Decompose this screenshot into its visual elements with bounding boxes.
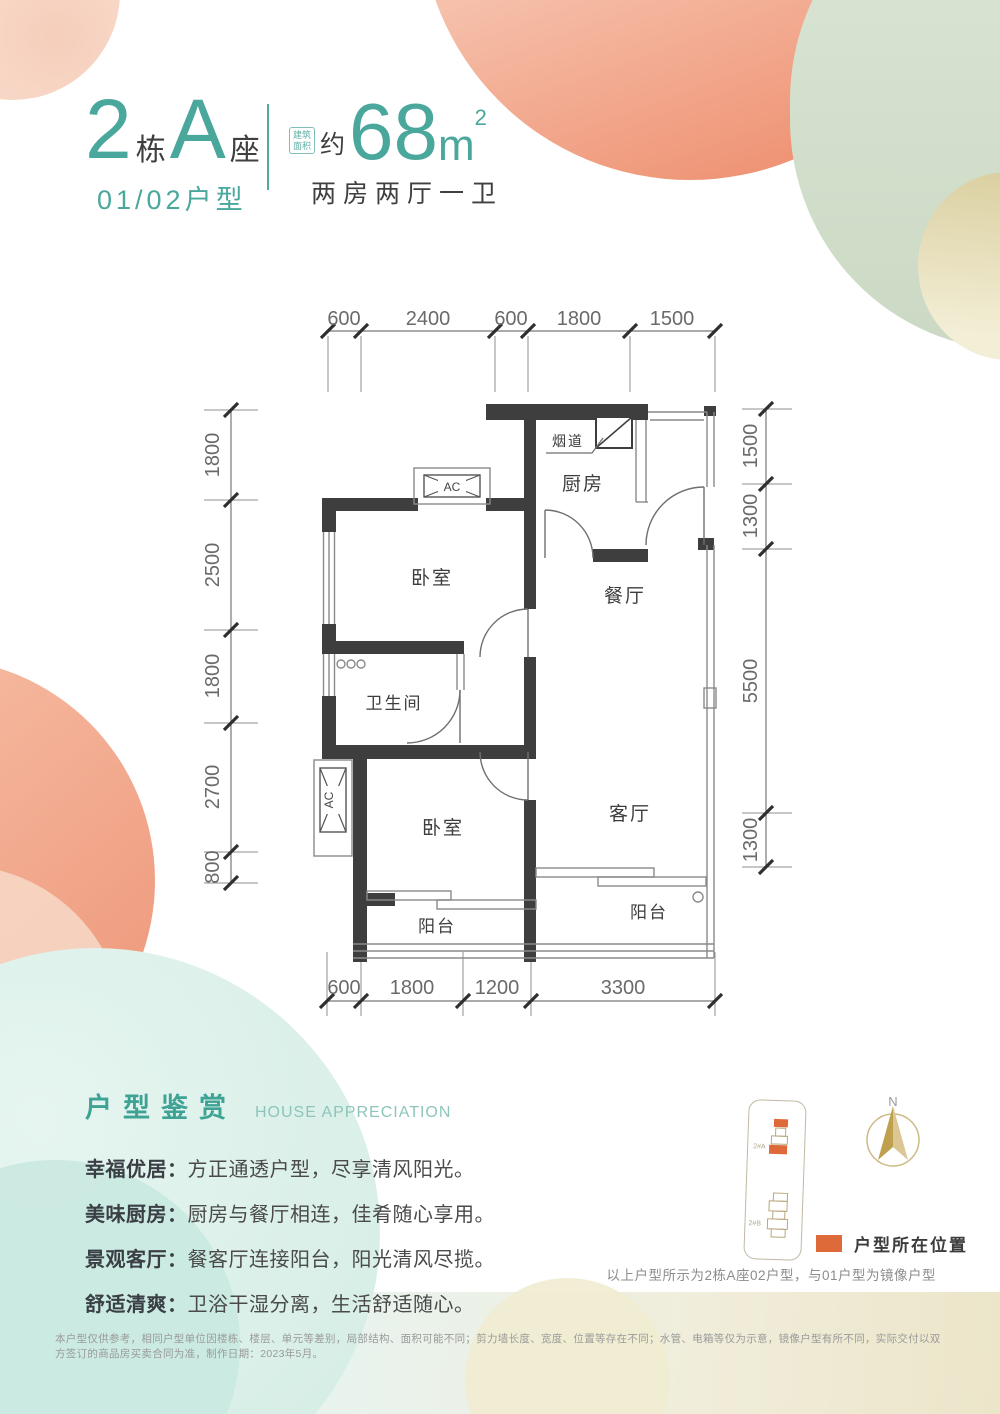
building-b-footprint: [771, 1229, 785, 1237]
dim-top-5: 1500: [650, 308, 695, 330]
area-unit: m: [438, 127, 475, 164]
room-label-bathroom: 卫生间: [366, 694, 423, 713]
dim-bottom-1: 600: [327, 977, 360, 999]
layout-description: 两房两厅一卫: [289, 174, 503, 210]
dimension-ticks: [224, 324, 773, 1008]
block-letter: A: [170, 92, 226, 168]
dim-right-1: 1500: [740, 424, 762, 469]
dim-top-4: 1800: [557, 308, 602, 330]
mirror-unit-caption: 以上户型所示为2栋A座02户型，与01户型为镜像户型: [500, 1264, 936, 1284]
unit-highlight-top: [774, 1119, 788, 1127]
area-approx: 约: [320, 135, 345, 156]
dim-left-2: 2500: [202, 543, 224, 588]
header-divider: [267, 104, 269, 190]
walls: [322, 404, 716, 962]
feature-row: 舒适清爽：卫浴干湿分离，生活舒适随心。: [85, 1288, 645, 1317]
badge-line1: 建筑: [293, 130, 311, 140]
area-row: 建筑面积 约 68 m 2: [289, 98, 503, 166]
room-label-bedroom2: 卧室: [422, 817, 464, 839]
dim-bottom-3: 1200: [475, 977, 520, 999]
building-b-footprint: [773, 1193, 787, 1201]
ac-unit-top: AC: [424, 475, 480, 497]
badge-line2: 面积: [293, 141, 311, 151]
location-legend: 户型所在位置: [816, 1231, 968, 1256]
floor-plan: 600 2400 600 1800 1500 600 1800 1200 330…: [185, 295, 800, 1060]
feature-label: 舒适清爽：: [85, 1294, 188, 1316]
room-label-kitchen: 厨房: [562, 473, 604, 495]
block-suffix: 座: [230, 137, 260, 164]
feature-label: 美味厨房：: [85, 1204, 188, 1226]
poster-content: 2 栋 A 座 01/02户型 建筑面积 约 68 m 2 两房两厅一卫: [0, 0, 1000, 1414]
feature-text: 厨房与餐厅相连，佳肴随心享用。: [188, 1204, 496, 1226]
dim-right-4: 1300: [740, 818, 762, 863]
ac-label-left: AC: [322, 791, 336, 808]
feature-label: 幸福优居：: [85, 1159, 188, 1181]
appreciation-section: 户型鉴赏 HOUSE APPRECIATION 幸福优居：方正通透户型，尽享清风…: [85, 1086, 645, 1333]
building-b-footprint: [767, 1219, 787, 1230]
thin-structure: [314, 412, 716, 958]
feature-list: 幸福优居：方正通透户型，尽享清风阳光。 美味厨房：厨房与餐厅相连，佳肴随心享用。…: [85, 1153, 645, 1317]
area-superscript: 2: [475, 109, 487, 128]
room-label-living: 客厅: [609, 803, 651, 825]
dim-top-2: 2400: [406, 308, 451, 330]
building-b-footprint: [773, 1211, 785, 1219]
dim-bottom-2: 1800: [390, 977, 435, 999]
feature-text: 卫浴干湿分离，生活舒适随心。: [188, 1294, 475, 1316]
area-value: 68: [349, 98, 438, 166]
room-label-flue: 烟道: [552, 433, 584, 449]
feature-row: 美味厨房：厨房与餐厅相连，佳肴随心享用。: [85, 1198, 645, 1227]
appreciation-title-cn: 户型鉴赏: [85, 1086, 237, 1125]
compass-icon: N: [858, 1092, 928, 1172]
feature-row: 幸福优居：方正通透户型，尽享清风阳光。: [85, 1153, 645, 1182]
dim-bottom-4: 3300: [601, 977, 646, 999]
header-block: 2 栋 A 座 01/02户型: [85, 92, 264, 217]
appreciation-title-en: HOUSE APPRECIATION: [255, 1104, 451, 1122]
dim-left-1: 1800: [202, 433, 224, 478]
dim-top-1: 600: [327, 308, 360, 330]
building-b-footprint: [769, 1201, 787, 1212]
building-a-footprint: [776, 1128, 786, 1136]
feature-text: 方正通透户型，尽享清风阳光。: [188, 1159, 475, 1181]
legend-color-swatch: [816, 1235, 842, 1252]
building-title: 2 栋 A 座: [85, 92, 264, 168]
dim-right-2: 1300: [740, 494, 762, 539]
dim-top-3: 600: [494, 308, 527, 330]
ac-label-top: AC: [444, 480, 461, 494]
room-label-bedroom1: 卧室: [411, 567, 453, 589]
compass: N: [858, 1092, 928, 1172]
room-label-balcony1: 阳台: [418, 917, 456, 936]
dim-left-3: 1800: [202, 654, 224, 699]
area-block: 建筑面积 约 68 m 2 两房两厅一卫: [289, 98, 503, 210]
building-b-label: 2#B: [748, 1220, 761, 1227]
disclaimer-text: 本户型仅供参考，相同户型单位因楼栋、楼层、单元等差别，局部结构、面积可能不同；剪…: [55, 1331, 950, 1361]
building-a-footprint: [771, 1136, 787, 1145]
building-a-label: 2#A: [753, 1143, 766, 1150]
feature-label: 景观客厅：: [85, 1249, 188, 1271]
building-number: 2: [85, 92, 132, 168]
room-label-dining: 餐厅: [604, 585, 646, 607]
appreciation-title: 户型鉴赏 HOUSE APPRECIATION: [85, 1086, 645, 1125]
site-plan-drawing: 2#A 2#B: [744, 1100, 805, 1260]
dim-right-3: 5500: [740, 659, 762, 704]
construction-area-badge: 建筑面积: [289, 127, 315, 154]
feature-text: 餐客厅连接阳台，阳光清风尽揽。: [188, 1249, 496, 1271]
dim-left-5: 800: [202, 850, 224, 883]
legend-label: 户型所在位置: [854, 1231, 968, 1256]
poster-page: 2 栋 A 座 01/02户型 建筑面积 约 68 m 2 两房两厅一卫: [0, 0, 1000, 1414]
ac-unit-left: AC: [320, 768, 346, 832]
extension-lines: [204, 336, 792, 1016]
room-label-balcony2: 阳台: [630, 903, 668, 922]
dim-left-4: 2700: [202, 765, 224, 810]
unit-highlight-bottom: [769, 1145, 787, 1155]
building-number-suffix: 栋: [136, 137, 166, 164]
site-plan: 2#A 2#B: [743, 1099, 807, 1261]
unit-type-line: 01/02户型: [85, 178, 264, 217]
